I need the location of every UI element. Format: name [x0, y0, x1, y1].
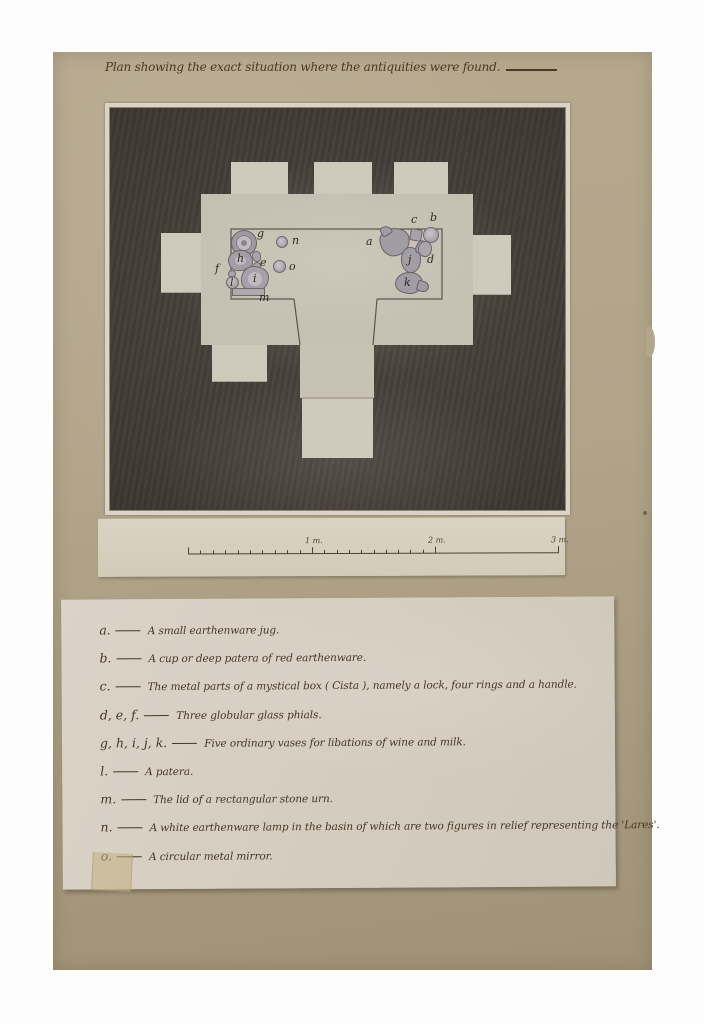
legend-rows: a.A small earthenware jug.b.A cup or dee…	[99, 616, 606, 873]
artifact-d-phial-label: d	[427, 254, 434, 265]
legend-letter: a.	[99, 622, 111, 637]
scale-minor-tick	[410, 550, 411, 554]
plan-objects: gnheoflimacbjdk	[110, 108, 565, 510]
legend-description: A patera.	[145, 766, 193, 778]
legend-dash	[116, 658, 141, 659]
caption-title-row: Plan showing the exact situation where t…	[105, 60, 557, 74]
scale-minor-tick	[200, 550, 201, 554]
legend-description: A circular metal mirror.	[149, 850, 273, 863]
scale-minor-tick	[349, 550, 350, 554]
scale-label-1m: 1 m.	[305, 536, 323, 545]
scale-minor-tick	[287, 550, 288, 554]
artifact-b-patera-label: b	[430, 212, 437, 223]
artifact-a-jug-label: a	[366, 236, 373, 247]
scale-bar: 1 m.2 m.3 m.	[98, 517, 565, 577]
legend-letter: l.	[100, 763, 108, 778]
legend-row: n.A white earthenware lamp in the basin …	[100, 814, 605, 845]
artifact-c-cista-label: c	[411, 214, 417, 225]
artifact-l-patera-label: l	[230, 277, 234, 288]
legend-description: The metal parts of a mystical box ( Cist…	[148, 679, 577, 694]
scale-minor-tick	[262, 550, 263, 554]
legend-letter: g, h, i, j, k.	[100, 735, 167, 750]
legend-description: A white earthenware lamp in the basin of…	[150, 819, 660, 834]
legend-dash	[172, 743, 197, 744]
scale-minor-tick	[361, 550, 362, 554]
legend-dash	[121, 799, 146, 800]
legend-row: g, h, i, j, k.Five ordinary vases for li…	[100, 729, 605, 760]
artifact-n-lamp-label: n	[292, 235, 299, 246]
scale-minor-tick	[337, 550, 338, 554]
artifact-o-mirror-label: o	[289, 261, 296, 272]
scale-minor-tick	[300, 550, 301, 554]
artifact-g-vase-label: g	[257, 228, 264, 239]
scale-minor-tick	[238, 550, 239, 554]
artifact-f-phial-label: f	[215, 263, 219, 274]
scale-minor-tick	[213, 550, 214, 554]
scale-minor-tick	[398, 550, 399, 554]
scale-label-2m: 2 m.	[428, 536, 446, 545]
legend-letter: d, e, f.	[100, 707, 140, 722]
artifact-j-vase-label: j	[408, 254, 411, 265]
legend-row: m.The lid of a rectangular stone urn.	[100, 785, 605, 816]
legend-letter: n.	[100, 820, 112, 835]
legend-dash	[113, 771, 138, 772]
scale-major-tick	[188, 547, 189, 554]
legend-description: The lid of a rectangular stone urn.	[153, 793, 333, 806]
legend-row: l.A patera.	[100, 757, 605, 788]
legend-dash	[144, 715, 169, 716]
scale-minor-tick	[275, 550, 276, 554]
legend-description: Three globular glass phials.	[176, 709, 321, 722]
legend-letter: m.	[100, 791, 116, 806]
artifact-k-vase-label: k	[404, 277, 411, 288]
scale-strip: 1 m.2 m.3 m.	[98, 517, 565, 577]
scale-major-tick	[558, 546, 559, 553]
scale-minor-tick	[250, 550, 251, 554]
scale-minor-tick	[324, 550, 325, 554]
legend-dash	[116, 630, 141, 631]
legend-sheet: a.A small earthenware jug.b.A cup or dee…	[61, 596, 616, 889]
legend-row: c.The metal parts of a mystical box ( Ci…	[100, 673, 605, 704]
legend-row: a.A small earthenware jug.	[99, 616, 604, 647]
scale-major-tick	[312, 547, 313, 554]
plan-photo-field: gnheoflimacbjdk	[109, 107, 566, 511]
legend-description: Five ordinary vases for libations of win…	[204, 736, 466, 750]
tape-fragment	[91, 852, 133, 892]
scale-major-tick	[435, 547, 436, 554]
legend-letter: c.	[100, 679, 111, 694]
artifact-h-vase-label: h	[237, 253, 244, 264]
artifact-n-lamp	[276, 236, 288, 248]
legend-dash	[118, 828, 143, 829]
scale-minor-tick	[423, 550, 424, 554]
mat-edge-notch	[646, 327, 655, 357]
caption-underline	[506, 69, 557, 71]
artifact-o-mirror	[273, 260, 286, 273]
scale-label-3m: 3 m.	[551, 535, 569, 544]
scale-minor-tick	[386, 550, 387, 554]
legend-description: A cup or deep patera of red earthenware.	[148, 652, 366, 665]
caption-title: Plan showing the exact situation where t…	[105, 60, 500, 74]
mat-speck	[643, 511, 647, 515]
legend-row: b.A cup or deep patera of red earthenwar…	[99, 645, 604, 676]
scale-minor-tick	[225, 550, 226, 554]
archival-photograph: Plan showing the exact situation where t…	[0, 0, 704, 1024]
artifact-i-vase-label: i	[253, 273, 257, 284]
artifact-m-lid-label: m	[259, 292, 269, 303]
legend-dash	[116, 687, 141, 688]
plan-photograph: gnheoflimacbjdk	[105, 103, 570, 515]
scale-minor-tick	[374, 550, 375, 554]
legend-row: d, e, f.Three globular glass phials.	[100, 701, 605, 732]
legend-description: A small earthenware jug.	[148, 624, 280, 637]
legend-row: o.A circular metal mirror.	[101, 842, 606, 873]
legend-letter: b.	[99, 651, 111, 666]
